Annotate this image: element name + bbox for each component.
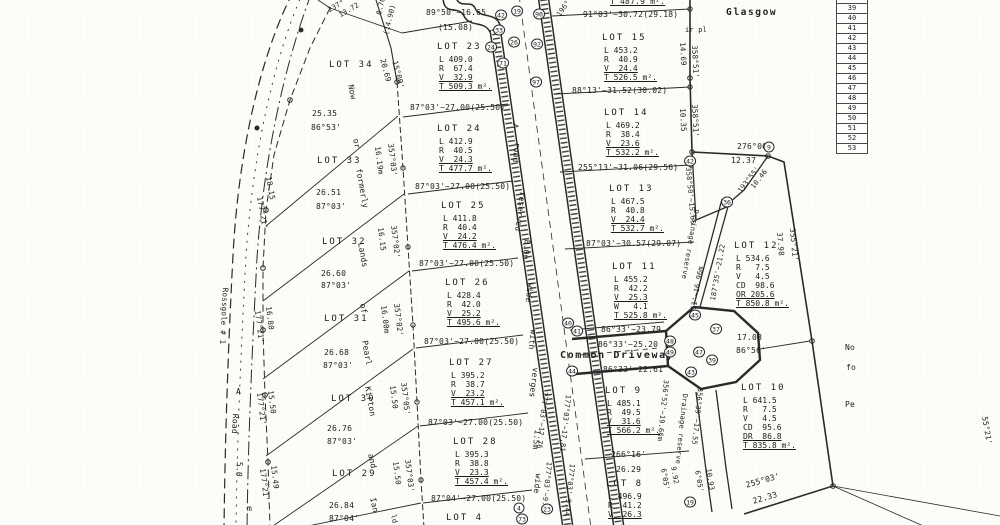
circled-ref-number: 71 (497, 58, 509, 69)
lot-name: LOT 13 (609, 184, 664, 194)
lot-block: LOT 31 (324, 314, 369, 327)
lot-dimension: L 641.5 (741, 396, 796, 405)
map-label: with (527, 329, 537, 350)
map-label: 358°51' (691, 45, 700, 78)
lot-dimension: L 395.2 (449, 371, 504, 380)
west-boundary-chain (263, 8, 330, 525)
map-label: 16.15 (377, 227, 387, 251)
circled-ref-number: 36 (721, 197, 733, 208)
lot-dimension: V 24.4 (609, 215, 664, 224)
map-label: 5.0 (234, 462, 243, 477)
lot-block: LOT 30 (331, 394, 376, 407)
lot-dimension: R 7.5 (741, 405, 796, 414)
lot-dimension: T 835.8 m². (741, 441, 796, 450)
lot-name: LOT 29 (332, 469, 377, 479)
circled-ref-number: 44 (566, 366, 578, 377)
map-label: 266°16' (611, 451, 646, 459)
lot-name: LOT 31 (324, 314, 369, 324)
lot-dimension: R 38.8 (453, 459, 508, 468)
lot-dimension: DR 86.8 (741, 432, 796, 441)
lot-block: LOT 26L 428.4R 42.0V 25.2T 495.6 m². (445, 278, 500, 327)
lot-block: LOT 25L 411.8R 40.4V 24.2T 476.4 m². (441, 201, 496, 250)
lot-dimension: T 477.7 m². (437, 164, 492, 173)
lot-dimension: L 534.6 (734, 254, 789, 263)
map-label: 86°33'~22.61 (603, 366, 663, 374)
circled-ref-number: 92 (531, 39, 543, 50)
map-label: 25.35 (312, 110, 337, 118)
lot-block: LOT 13L 467.5R 40.8V 24.4T 532.7 m². (609, 184, 664, 233)
map-label: 15.50 (389, 385, 399, 409)
lot-dimension: R 40.9 (602, 55, 657, 64)
map-label: road (511, 142, 521, 163)
map-label: ld (389, 514, 398, 524)
map-label: wide (524, 282, 534, 303)
map-label: 26.84 (329, 502, 354, 510)
circled-ref-number: 73 (516, 514, 528, 525)
map-label: 87°03'~30.57(29.07) (586, 240, 681, 248)
map-label: 8.0m (521, 239, 531, 260)
lot-dimension: V 23.3 (453, 468, 508, 477)
map-label: Now (346, 84, 357, 100)
road-arc-mid (236, 0, 303, 525)
map-label: 87°04' (329, 515, 359, 523)
circled-ref-number: 33 (493, 25, 505, 36)
lot-dimension: T 526.5 m². (602, 73, 657, 82)
map-label: and (366, 453, 377, 469)
map-label: 10.35 (679, 108, 688, 132)
map-label: 26.29 (616, 466, 641, 474)
lot-dimension: R 40.5 (437, 146, 492, 155)
lot-dimension: T 476.4 m². (441, 241, 496, 250)
map-label: 87°03' (316, 203, 346, 211)
circled-ref-number: 47 (693, 347, 705, 358)
lot-dimension: V 4.5 (734, 272, 789, 281)
lot-dimension: L 412.9 (437, 137, 492, 146)
lot-block: LOT 15L 453.2R 40.9V 24.4T 526.5 m². (602, 33, 657, 82)
map-label: A (510, 123, 519, 129)
lot-name: LOT 34 (329, 60, 374, 70)
lot-dimension: R 38.4 (604, 130, 659, 139)
lot-block: LOT 28L 395.3R 38.8V 23.3T 457.4 m². (453, 437, 508, 486)
circled-ref-number: 9 (764, 142, 775, 153)
lot-dimension: L 411.8 (441, 214, 496, 223)
lot-dimension: T 457.1 m². (449, 398, 504, 407)
map-label: T 487.9 m². (610, 0, 665, 6)
map-label: 358°51' (691, 104, 700, 137)
lot-name: LOT 12 (734, 241, 789, 251)
reference-table: 38394041424344454647484950515253 (836, 0, 868, 154)
lot-block: LOT 24L 412.9R 40.5V 24.3T 477.7 m². (437, 124, 492, 173)
lot-dimension: V 4.5 (741, 414, 796, 423)
lot-dimension: V 24.2 (441, 232, 496, 241)
lot-name: LOT 9 (605, 386, 660, 396)
lot-dimension: CD 98.6 (734, 281, 789, 290)
lot-dimension: L 469.2 (604, 121, 659, 130)
map-label: Pe (845, 401, 855, 409)
map-label: (15.08) (438, 24, 473, 32)
road-arc-outer (224, 0, 293, 525)
map-label: 86°53' (311, 124, 341, 132)
map-label: 87°03'~27.00(25.50) (410, 104, 505, 112)
map-label: wide (532, 473, 542, 494)
map-label: 26.60 (321, 270, 346, 278)
lot-block: LOT 14L 469.2R 38.4V 23.6T 532.2 m². (604, 108, 659, 157)
map-label: 12.37 (731, 157, 756, 165)
lot-name: LOT 8 (606, 479, 643, 489)
lot-name: LOT 4 (446, 513, 483, 523)
lot-name: LOT 33 (317, 156, 362, 166)
lot-dimension: T 525.8 m². (612, 311, 667, 320)
map-label: A (236, 388, 241, 396)
lot-name: LOT 32 (322, 237, 367, 247)
lot-dimension: T 566.2 m². (605, 426, 660, 435)
map-label: 15.49 (270, 465, 280, 489)
circled-ref-number: 37 (710, 324, 722, 335)
map-label: 355°21' (789, 228, 799, 262)
map-label: or (351, 138, 361, 149)
table-row: 53 (836, 143, 868, 154)
lot-dimension: R 49.5 (605, 408, 660, 417)
map-label: 15.50 (267, 390, 277, 414)
map-label: 14.69 (679, 42, 688, 66)
map-label: 86°33'~25.20 (598, 341, 658, 349)
lot-block: LOT 33 (317, 156, 362, 169)
lot-block: LOT 32 (322, 237, 367, 250)
lot-dimension: OR 205.6 (734, 290, 789, 299)
circled-ref-number: 19 (684, 497, 696, 508)
lot-name: LOT 27 (449, 358, 504, 368)
lot-name: LOT 25 (441, 201, 496, 211)
map-label: 87°03'~27.00(25.50) (415, 183, 510, 191)
lot-dimension: R 40.4 (441, 223, 496, 232)
map-label: Ian (368, 497, 379, 513)
circled-ref-number: 26 (508, 37, 520, 48)
lot-dimension: V 26.3 (606, 510, 643, 519)
lot-block: LOT 12L 534.6R 7.5V 4.5CD 98.6OR 205.6T … (734, 241, 789, 308)
lot-dimension: V 23.2 (449, 389, 504, 398)
lot-dimension: L 467.5 (609, 197, 664, 206)
lot-dimension: V 24.3 (437, 155, 492, 164)
lot-dimension: T 532.2 m². (604, 148, 659, 157)
lot-dimension: R 41.2 (606, 501, 643, 510)
lot-dimension: W 4.1 (612, 302, 667, 311)
lot-dimension: L 455.2 (612, 275, 667, 284)
lot-dimension: R 7.5 (734, 263, 789, 272)
lot-block: LOT 23L 409.0R 67.4V 32.9T 509.3 m². (437, 42, 492, 91)
lot-dimension: V 24.4 (602, 64, 657, 73)
lot-name: LOT 10 (741, 383, 796, 393)
lot-block: LOT 8L 496.9R 41.2V 26.3 (606, 479, 643, 519)
lot-name: LOT 15 (602, 33, 657, 43)
map-label: 87°03' (321, 282, 351, 290)
lot-block: LOT 9L 485.1R 49.5V 31.6T 566.2 m². (605, 386, 660, 435)
lot-dimension: R 67.4 (437, 64, 492, 73)
map-label: 89°50'~16.65 (426, 9, 486, 17)
circled-ref-number: 42 (495, 10, 507, 21)
lot-block: LOT 34 (329, 60, 374, 73)
map-label: fo (846, 364, 856, 372)
circled-ref-number: 41 (571, 326, 583, 337)
map-label: 87°03'~27.00(25.50) (428, 419, 523, 427)
map-label: 87°03' (323, 362, 353, 370)
lot-dimension: L 395.3 (453, 450, 508, 459)
map-label: 17.08 (737, 334, 762, 342)
lot-dimension: V 32.9 (437, 73, 492, 82)
circled-ref-number: 97 (530, 77, 542, 88)
map-label: 26.68 (324, 349, 349, 357)
lot-block: LOT 27L 395.2R 38.7V 23.2T 457.1 m². (449, 358, 504, 407)
circled-ref-number: 42 (684, 156, 696, 167)
lot-dimension: V 25.2 (445, 309, 500, 318)
lot-dimension: V 25.3 (612, 293, 667, 302)
map-label: Common Driveway (560, 351, 674, 361)
lot-name: LOT 11 (612, 262, 667, 272)
lot-dimension: R 42.0 (445, 300, 500, 309)
map-label: Road (230, 414, 239, 434)
lot-name: LOT 24 (437, 124, 492, 134)
lot-name: LOT 14 (604, 108, 659, 118)
lot-dimension: T 495.6 m². (445, 318, 500, 327)
lot-dimension: T 509.3 m². (437, 82, 492, 91)
lot-dimension: L 453.2 (602, 46, 657, 55)
map-label: 88°13'~31.52(30.02) (572, 87, 667, 95)
lot-dimension: V 23.6 (604, 139, 659, 148)
circled-ref-number: 23 (541, 504, 553, 515)
circled-ref-number: 4 (514, 503, 525, 514)
lot-dimension: T 532.7 m². (609, 224, 664, 233)
circled-ref-number: 43 (685, 367, 697, 378)
map-label: 26.51 (316, 189, 341, 197)
circled-ref-number: 48 (664, 336, 676, 347)
map-label: ir pl (685, 27, 707, 34)
circled-ref-number: 24 (485, 42, 497, 53)
map-label: 87°03' (327, 438, 357, 446)
map-label: 91°03'~30.72(29.18) (583, 11, 678, 19)
lot-block: LOT 10L 641.5R 7.5V 4.5CD 95.6DR 86.8T 8… (741, 383, 796, 450)
map-label: 86°56' (736, 347, 766, 355)
circled-ref-number: 19 (511, 6, 523, 17)
map-label: 16.80 (265, 306, 275, 330)
map-label: 87°03'~27.00(25.50) (419, 260, 514, 268)
lot-dimension: R 40.8 (609, 206, 664, 215)
lot-dimension: V 31.6 (605, 417, 660, 426)
circled-ref-number: 49 (664, 347, 676, 358)
lot-name: LOT 30 (331, 394, 376, 404)
lot-dimension: L 409.0 (437, 55, 492, 64)
lot-dimension: L 485.1 (605, 399, 660, 408)
lot-dimension: L 496.9 (606, 492, 643, 501)
map-label: 26.76 (327, 425, 352, 433)
map-label: Glasgow (726, 8, 777, 18)
lot-dimension: CD 95.6 (741, 423, 796, 432)
map-label: No (845, 344, 855, 352)
survey-plan-canvas: 38394041424344454647484950515253 T 487.9… (0, 0, 1000, 525)
lot-name: LOT 28 (453, 437, 508, 447)
lot-dimension: T 850.8 m². (734, 299, 789, 308)
lot-block: LOT 11L 455.2R 42.2V 25.3W 4.1T 525.8 m²… (612, 262, 667, 320)
lot-block: LOT 29 (332, 469, 377, 482)
lot-dimension: R 38.7 (449, 380, 504, 389)
map-label: 87°04'~27.00(25.50) (431, 495, 526, 503)
map-label: Rossgole # 1 (219, 288, 229, 345)
lot-dimension: T 457.4 m². (453, 477, 508, 486)
circled-ref-number: 45 (689, 310, 701, 321)
circled-ref-number: 39 (706, 355, 718, 366)
circled-ref-number: 90 (533, 9, 545, 20)
lot-name: LOT 26 (445, 278, 500, 288)
map-label: m (247, 505, 252, 513)
lot-block: LOT 4 (446, 513, 483, 525)
map-label: 87°03'~27.00(25.50) (424, 338, 519, 346)
map-label: 86°33'~23.79 (601, 326, 661, 334)
map-label: 15.50 (392, 461, 402, 485)
lot-dimension: L 428.4 (445, 291, 500, 300)
lot-name: LOT 23 (437, 42, 492, 52)
map-label: 255°13'~31.06(29.56) (578, 164, 678, 172)
lot-dimension: R 42.2 (612, 284, 667, 293)
map-label: of (358, 303, 368, 314)
